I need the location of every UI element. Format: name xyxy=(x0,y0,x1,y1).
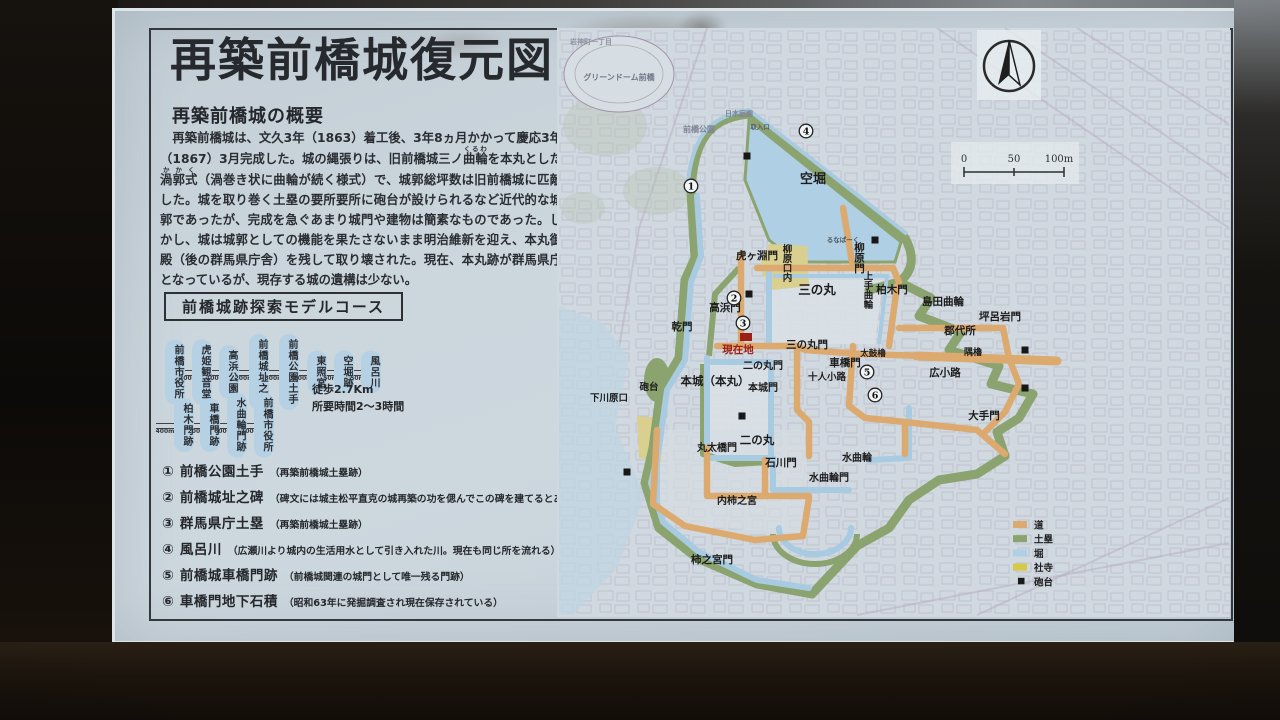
battery-square-icon xyxy=(624,469,631,476)
model-course-heading: 前橋城跡探索モデルコース xyxy=(164,292,403,321)
point-name: 風呂川 xyxy=(180,538,222,558)
battery-square-icon xyxy=(746,291,753,298)
legend-swatch xyxy=(1013,549,1027,556)
numbered-point: ④風呂川（広瀬川より城内の生活用水として引き入れた川。現在も同じ所を流れる） xyxy=(162,538,583,564)
point-number: ④ xyxy=(162,542,174,558)
legend-label: 堀 xyxy=(1034,548,1044,560)
map-label: 虎ヶ淵門 xyxy=(736,249,778,262)
photo-of-signboard: 再築前橋城復元図 再築前橋城の概要 再築前橋城は、文久3年（1863）着工後、3… xyxy=(0,0,1280,720)
map-label: 柳原門 xyxy=(853,241,865,274)
map-label: 三の丸門 xyxy=(786,338,828,351)
legend-swatch xyxy=(1018,578,1025,585)
map-label: 砲台 xyxy=(638,381,659,393)
map-label: 二の丸 xyxy=(740,433,775,447)
battery-square-icon xyxy=(1022,385,1029,392)
point-number: ② xyxy=(162,490,174,506)
legend-label: 道 xyxy=(1034,520,1044,532)
map-label: 隅櫓 xyxy=(964,346,982,358)
course-station: 前橋市役所 xyxy=(165,340,185,405)
map-label: グリーンドーム前橋 xyxy=(583,72,655,82)
map-label: 前橋公園 xyxy=(683,124,715,134)
map-point-marker-number: 4 xyxy=(803,126,810,137)
map-label: 柿之宮門 xyxy=(691,553,733,566)
map-label: 本城門 xyxy=(748,381,778,394)
map-label: 取入口 xyxy=(750,122,770,131)
legend-swatch xyxy=(1013,564,1027,571)
battery-square-icon xyxy=(872,237,879,244)
map-point-marker-number: 6 xyxy=(872,390,879,401)
background-left-edge xyxy=(0,0,118,720)
numbered-point: ⑤前橋城車橋門跡（前橋城関連の城門として唯一残る門跡） xyxy=(162,564,583,590)
numbered-point: ②前橋城址之碑（碑文には城主松平直克の城再築の功を偲んでこの碑を建てるとある） xyxy=(162,486,583,512)
walk-duration: 所要時間2～3時間 xyxy=(312,399,404,416)
legend-swatch xyxy=(1013,521,1027,528)
map-label: 広小路 xyxy=(929,366,961,379)
map-label: 三の丸 xyxy=(798,282,836,297)
map-label: 水曲輪門 xyxy=(808,471,849,484)
map-label: 島田曲輪 xyxy=(922,295,964,308)
point-number: ① xyxy=(162,464,174,480)
map-label: 十人小路 xyxy=(808,371,847,383)
numbered-point: ③群馬県庁土塁（再築前橋城土塁跡） xyxy=(162,512,583,538)
battery-square-icon xyxy=(739,413,746,420)
legend-label: 土塁 xyxy=(1034,534,1054,546)
numbered-points-list: ①前橋公園土手（再築前橋城土塁跡）②前橋城址之碑（碑文には城主松平直克の城再築の… xyxy=(162,460,583,616)
map-label: 水曲輪 xyxy=(841,451,873,464)
course-station: 車橋門跡 xyxy=(200,398,220,452)
compass xyxy=(977,30,1041,100)
map-label: 車橋門 xyxy=(829,356,861,369)
background-right-edge xyxy=(1234,0,1280,720)
point-number: ③ xyxy=(162,516,174,532)
scale-100m: 100m xyxy=(1045,154,1074,165)
course-station: 虎姫観音堂 xyxy=(192,340,212,405)
map-label: 坪呂岩門 xyxy=(979,310,1021,323)
point-number: ⑤ xyxy=(162,568,174,584)
course-distance: 400m xyxy=(156,428,175,435)
legend-swatch xyxy=(1013,535,1027,542)
current-location-marker xyxy=(740,333,752,341)
map-point-marker-number: 5 xyxy=(864,367,871,378)
map-label: 岩神町一丁目 xyxy=(569,37,612,46)
map-label: 郡代所 xyxy=(943,324,976,337)
sign-title: 再築前橋城復元図 xyxy=(170,24,554,90)
map-label: 柳原口内 xyxy=(781,243,793,283)
walk-note: 徒歩2.7Km 所要時間2～3時間 xyxy=(312,382,404,415)
map-label: 石川門 xyxy=(764,457,797,469)
map-label: 上手曲輪 xyxy=(862,270,874,310)
map-label: 内柿之宮 xyxy=(717,494,757,507)
point-name: 前橋城車橋門跡 xyxy=(180,564,278,584)
map-label: 太鼓櫓 xyxy=(859,348,886,359)
course-station: 水曲輪門跡 xyxy=(227,393,247,458)
course-station: 柏木門跡 xyxy=(174,398,194,452)
battery-square-icon xyxy=(744,153,751,160)
castle-restoration-map: 岩神町一丁目グリーンドーム前橋前橋公園日本庭園取入口空堀るなぱーく虎ヶ淵門柳原口… xyxy=(557,28,1230,617)
battery-square-icon xyxy=(1022,347,1029,354)
map-label: 空堀 xyxy=(800,171,826,187)
legend-label: 社寺 xyxy=(1033,562,1054,574)
map-label: 本城（本丸） xyxy=(681,374,750,388)
legend-label: 砲台 xyxy=(1033,576,1054,588)
map-point-marker-number: 1 xyxy=(688,181,695,192)
scale-bar: 0 50 100m xyxy=(951,142,1079,184)
map-point-marker-number: 2 xyxy=(731,293,738,304)
map-label: 下川原口 xyxy=(590,393,628,404)
point-note: （再築前橋城土塁跡） xyxy=(270,517,368,531)
overview-heading: 再築前橋城の概要 xyxy=(172,102,324,128)
point-note: （再築前橋城土塁跡） xyxy=(270,465,368,479)
map-label: 現在地 xyxy=(722,343,754,356)
map-label: 大手門 xyxy=(968,409,1000,422)
point-name: 前橋公園土手 xyxy=(180,460,264,480)
map-label: 日本庭園 xyxy=(725,109,753,118)
point-name: 車橋門地下石積 xyxy=(180,590,278,610)
map-label: 乾門 xyxy=(672,320,693,333)
point-note: （前橋城関連の城門として唯一残る門跡） xyxy=(284,569,470,583)
course-station: 前橋公園土手 xyxy=(279,334,299,410)
walk-distance: 徒歩2.7Km xyxy=(312,382,404,399)
map-label: 丸太橋門 xyxy=(696,441,737,454)
information-signboard: 再築前橋城復元図 再築前橋城の概要 再築前橋城は、文久3年（1863）着工後、3… xyxy=(112,8,1238,644)
map-label: 二の丸門 xyxy=(743,359,783,372)
point-note: （昭和63年に発掘調査され現在保存されている） xyxy=(284,595,503,609)
point-note: （広瀬川より城内の生活用水として引き入れた川。現在も同じ所を流れる） xyxy=(228,543,561,557)
map-label: 柏木門 xyxy=(876,283,908,296)
numbered-point: ⑥車橋門地下石積（昭和63年に発掘調査され現在保存されている） xyxy=(162,590,583,616)
numbered-point: ①前橋公園土手（再築前橋城土塁跡） xyxy=(162,460,583,486)
course-station: 前橋市役所 xyxy=(254,393,274,458)
map-point-marker-number: 3 xyxy=(740,318,747,329)
point-number: ⑥ xyxy=(162,594,174,610)
scale-0: 0 xyxy=(961,154,967,165)
course-station: 高浜公園 xyxy=(219,345,239,399)
point-name: 群馬県庁土塁 xyxy=(180,512,264,532)
background-bottom-wood xyxy=(0,642,1280,720)
scale-50: 50 xyxy=(1008,154,1021,165)
overview-paragraph: 再築前橋城は、文久3年（1863）着工後、3年8ヵ月かかって慶応3年（1867）… xyxy=(160,129,562,290)
point-note: （碑文には城主松平直克の城再築の功を偲んでこの碑を建てるとある） xyxy=(270,491,583,505)
point-name: 前橋城址之碑 xyxy=(180,486,264,506)
